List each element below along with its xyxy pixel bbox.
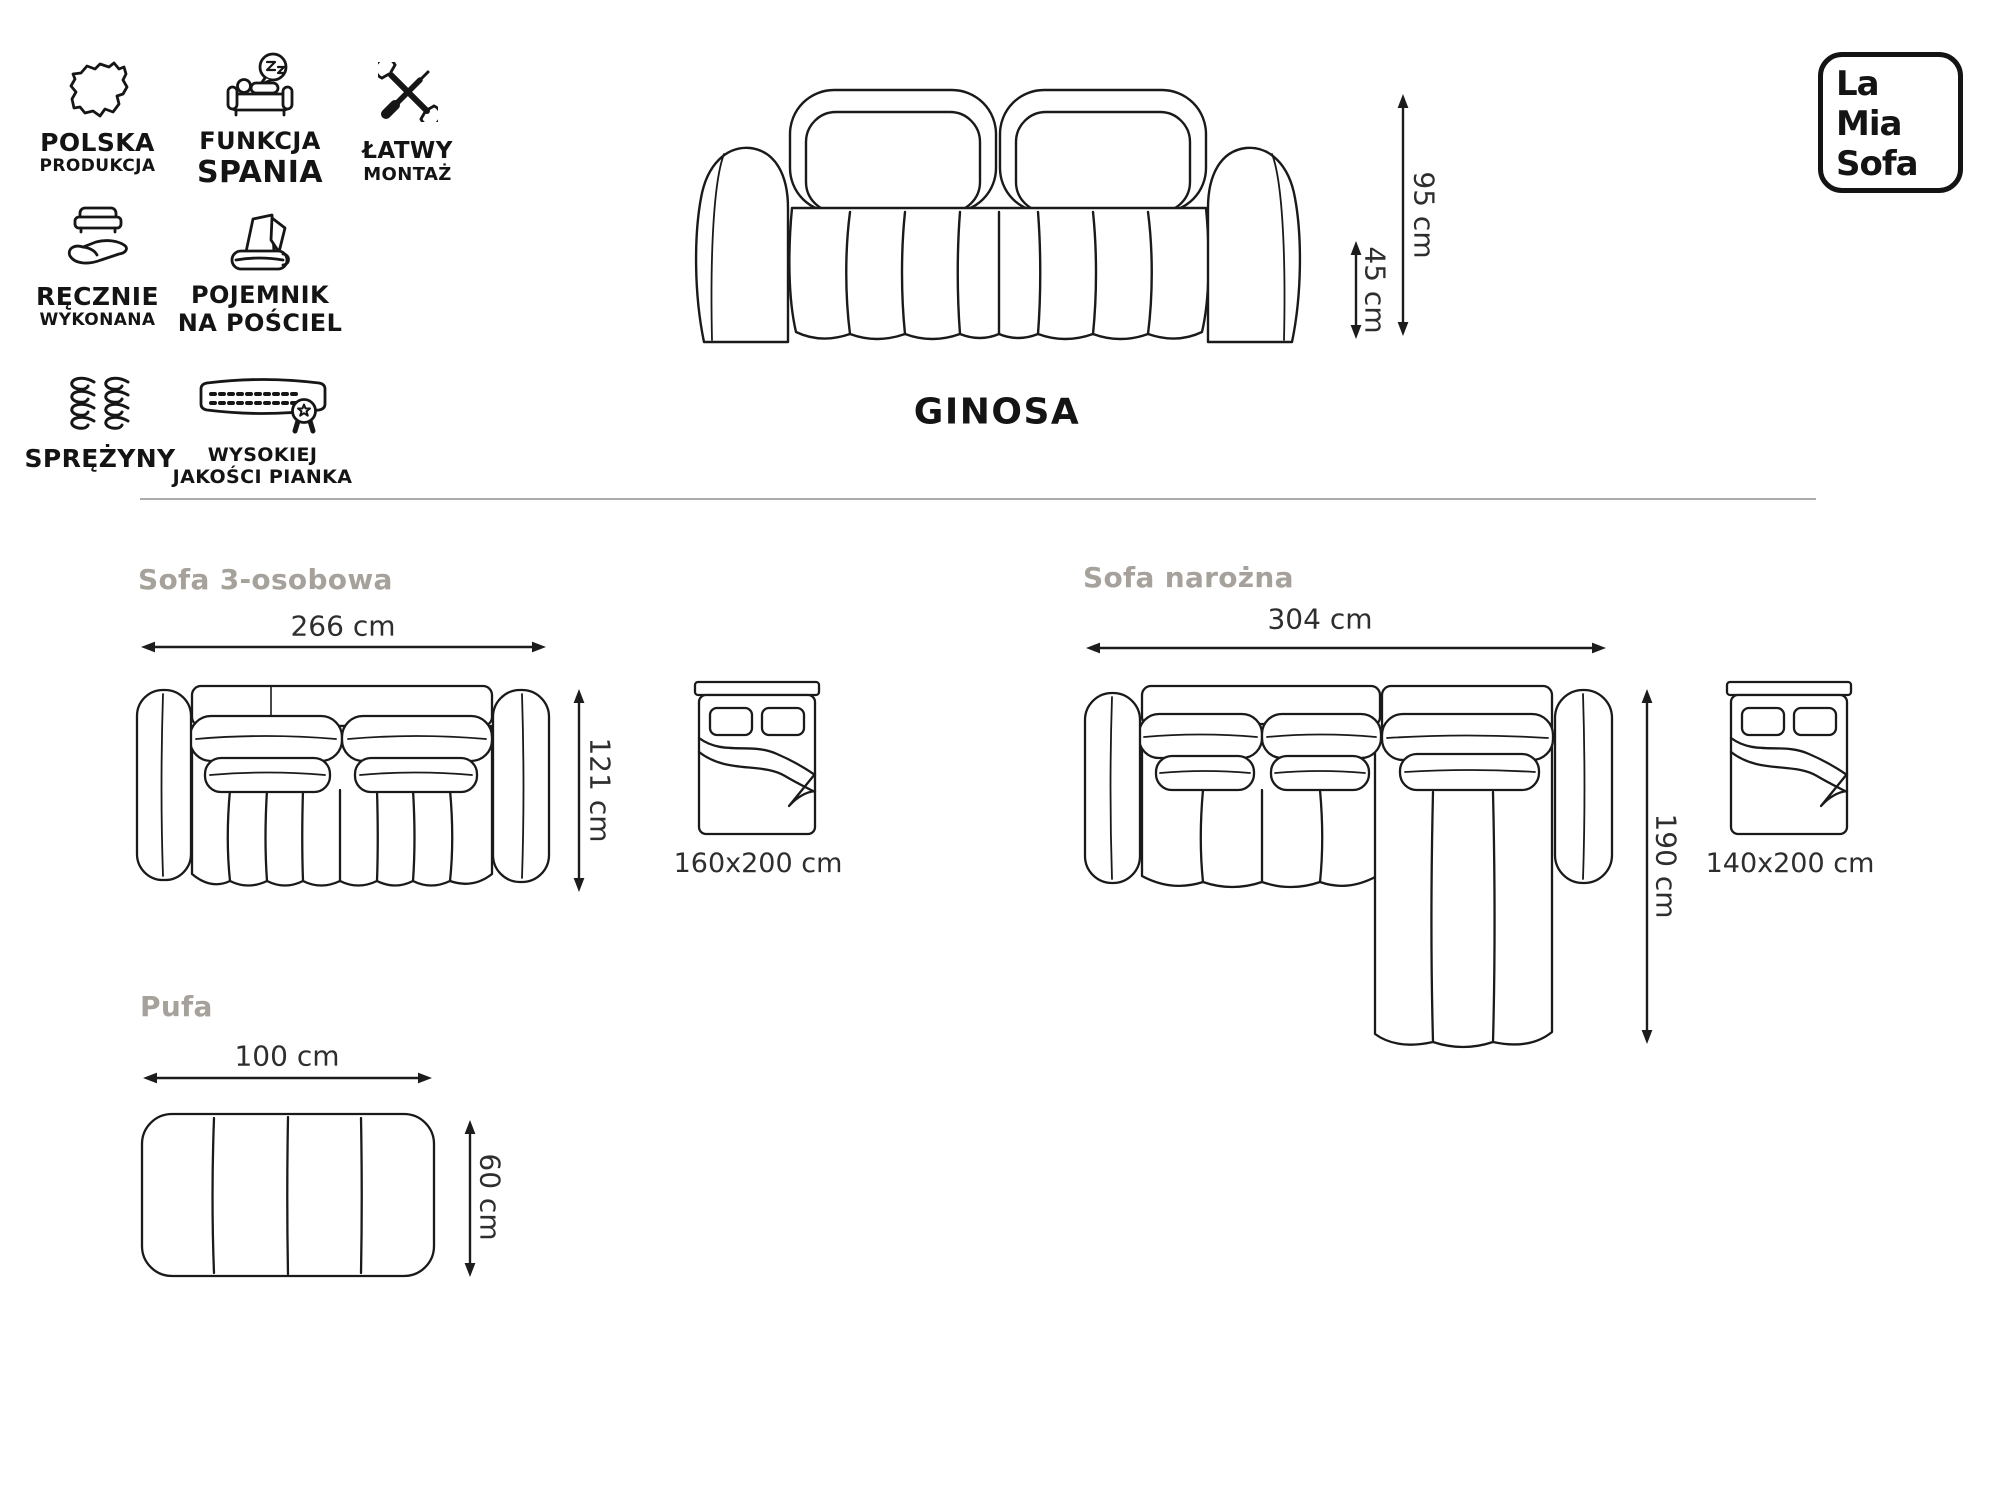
sofa3-bed-size-icon [695, 682, 819, 836]
corner-depth-label: 190 cm [1650, 813, 1683, 918]
variant-title-sofa3: Sofa 3-osobowa [138, 563, 393, 596]
sleep-function-icon [222, 40, 298, 122]
feature-polska-produkcja: POLSKA PRODUKCJA [30, 40, 165, 177]
corner-width-arrow [1085, 640, 1607, 656]
pufa-width-label: 100 cm [234, 1040, 339, 1073]
feature-label: SPRĘŻYNY [24, 444, 175, 473]
pufa-depth-label: 60 cm [474, 1153, 507, 1240]
feature-label: FUNKCJA [199, 128, 320, 156]
section-divider [140, 498, 1816, 500]
feature-label: WYSOKIEJ [208, 444, 318, 466]
sofa3-width-arrow [140, 639, 547, 655]
springs-icon [67, 370, 133, 438]
sofa3-depth-label: 121 cm [584, 737, 617, 842]
feature-pojemnik-na-posciel: POJEMNIK NA POŚCIEL [180, 196, 340, 338]
corner-sleeping-area-label: 140x200 cm [1706, 848, 1875, 879]
total-height-label: 95 cm [1408, 171, 1441, 258]
product-name: GINOSA [914, 392, 1080, 433]
variant-title-corner: Sofa narożna [1083, 561, 1294, 594]
feature-label: ŁATWY [362, 138, 453, 165]
tools-icon [378, 40, 438, 132]
feature-sublabel: JAKOŚCI PIANKA [173, 466, 353, 488]
brand-logo-line2: Mia [1836, 104, 1958, 144]
product-spec-sheet: POLSKA PRODUKCJA FUNKC [0, 0, 2000, 1500]
brand-logo-line3: Sofa [1836, 144, 1958, 184]
feature-sublabel: PRODUKCJA [40, 157, 156, 177]
handmade-icon [63, 196, 133, 276]
sofa3-sleeping-area-label: 160x200 cm [674, 848, 843, 879]
feature-funkcja-spania: FUNKCJA SPANIA [180, 40, 340, 191]
pufa-top-view-drawing [140, 1112, 436, 1278]
seat-height-label: 45 cm [1359, 246, 1392, 333]
pufa-width-arrow [142, 1070, 433, 1086]
sofa3-top-view-drawing [135, 678, 555, 903]
feature-sublabel: SPANIA [197, 156, 323, 191]
feature-sprezyny: SPRĘŻYNY [30, 370, 170, 473]
poland-map-icon [66, 40, 130, 122]
bedding-storage-icon [227, 196, 293, 276]
variant-title-pufa: Pufa [140, 990, 213, 1023]
foam-quality-icon [197, 370, 329, 438]
brand-logo-line1: La [1836, 64, 1958, 104]
feature-label: POLSKA [40, 128, 155, 157]
sofa3-width-label: 266 cm [290, 610, 395, 643]
corner-width-label: 304 cm [1267, 603, 1372, 636]
sofa-front-view-drawing [680, 50, 1340, 350]
feature-sublabel: NA POŚCIEL [178, 310, 343, 338]
feature-sublabel: MONTAŻ [363, 165, 452, 186]
corner-bed-size-icon [1727, 682, 1851, 836]
feature-latwy-montaz: ŁATWY MONTAŻ [345, 40, 470, 186]
feature-label: RĘCZNIE [36, 282, 159, 311]
feature-recznie-wykonana: RĘCZNIE WYKONANA [30, 196, 165, 331]
feature-label: POJEMNIK [191, 282, 329, 310]
brand-logo: La Mia Sofa [1818, 52, 1963, 193]
corner-sofa-top-view-drawing [1082, 678, 1617, 1053]
feature-sublabel: WYKONANA [40, 311, 156, 331]
feature-wysokiej-jakosci-pianka: WYSOKIEJ JAKOŚCI PIANKA [175, 370, 350, 488]
